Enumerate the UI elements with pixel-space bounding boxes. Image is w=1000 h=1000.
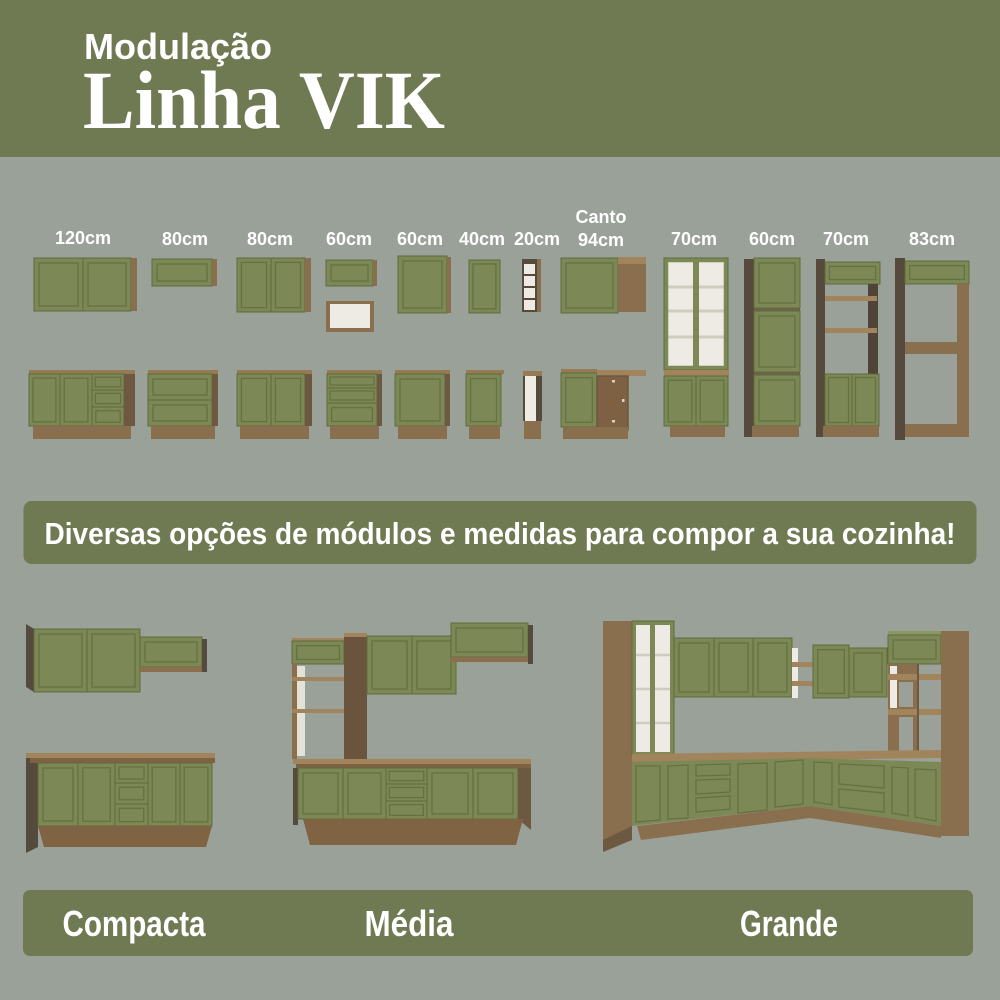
svg-text:70cm: 70cm	[823, 229, 869, 249]
svg-text:Linha VIK: Linha VIK	[83, 54, 445, 146]
svg-text:Diversas opções de módulos e m: Diversas opções de módulos e medidas par…	[45, 516, 956, 551]
svg-text:70cm: 70cm	[671, 229, 717, 249]
svg-text:60cm: 60cm	[326, 229, 372, 249]
svg-text:Canto: Canto	[576, 207, 627, 227]
svg-text:80cm: 80cm	[162, 229, 208, 249]
svg-text:Compacta: Compacta	[63, 903, 207, 944]
svg-text:60cm: 60cm	[397, 229, 443, 249]
svg-text:Grande: Grande	[740, 903, 838, 944]
svg-text:120cm: 120cm	[55, 228, 111, 248]
svg-text:94cm: 94cm	[578, 230, 624, 250]
svg-text:83cm: 83cm	[909, 229, 955, 249]
svg-text:80cm: 80cm	[247, 229, 293, 249]
svg-text:Média: Média	[365, 903, 455, 944]
svg-text:60cm: 60cm	[749, 229, 795, 249]
svg-text:40cm: 40cm	[459, 229, 505, 249]
svg-text:20cm: 20cm	[514, 229, 560, 249]
